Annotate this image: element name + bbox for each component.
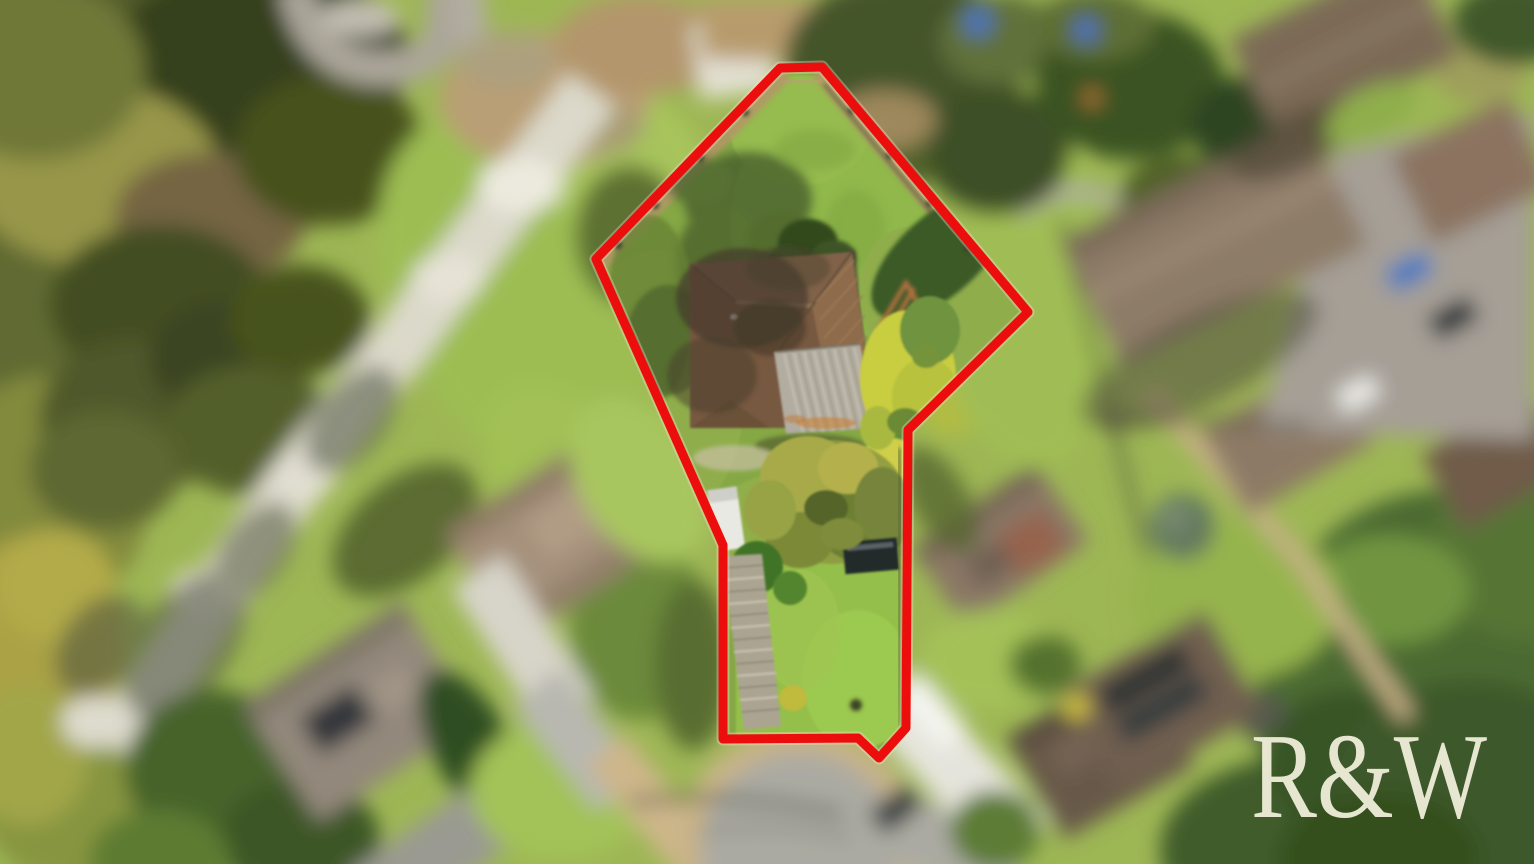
svg-text:R&W: R&W [1251, 709, 1487, 844]
